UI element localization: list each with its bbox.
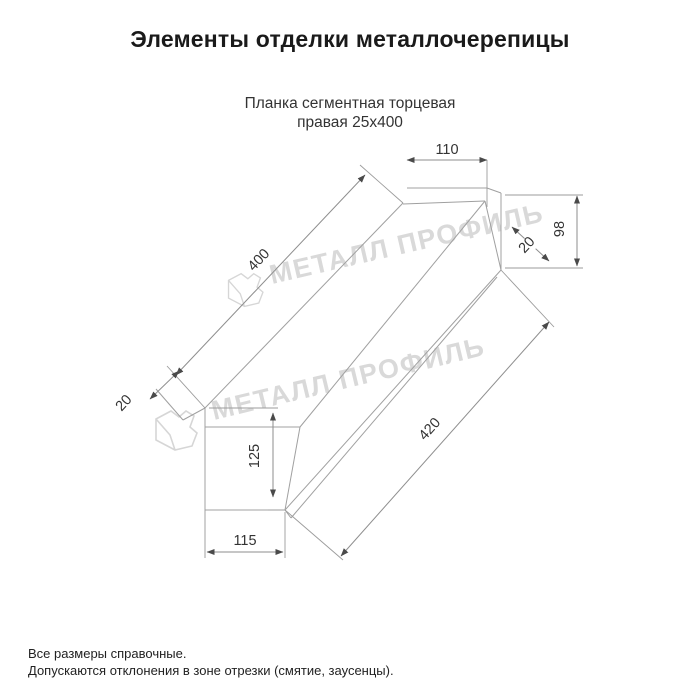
footer-note-1: Все размеры справочные. bbox=[28, 645, 394, 662]
dim-left-width: 115 bbox=[233, 533, 256, 549]
dim-top-width: 110 bbox=[435, 142, 458, 158]
dim-right-height: 98 bbox=[552, 221, 568, 237]
watermark-upper: МЕТАЛЛ ПРОФИЛЬ bbox=[229, 198, 547, 307]
metall-profil-logo-icon bbox=[156, 411, 197, 450]
dim-left-fold: 20 bbox=[113, 392, 136, 415]
dim-bottom-length: 420 bbox=[416, 415, 444, 444]
drawing-page: Элементы отделки металлочерепицы Планка … bbox=[0, 0, 700, 700]
watermark-text: МЕТАЛЛ ПРОФИЛЬ bbox=[208, 331, 488, 426]
watermark-text: МЕТАЛЛ ПРОФИЛЬ bbox=[267, 198, 547, 290]
dim-left-height: 125 bbox=[247, 444, 263, 468]
footer-note-2: Допускаются отклонения в зоне отрезки (с… bbox=[28, 662, 394, 679]
technical-drawing: МЕТАЛЛ ПРОФИЛЬ МЕТАЛЛ ПРОФИЛЬ bbox=[0, 0, 700, 700]
dimension-labels: 110 98 20 400 420 125 115 20 bbox=[113, 142, 568, 549]
watermark-lower: МЕТАЛЛ ПРОФИЛЬ bbox=[156, 331, 488, 450]
footer-notes: Все размеры справочные. Допускаются откл… bbox=[28, 645, 394, 679]
